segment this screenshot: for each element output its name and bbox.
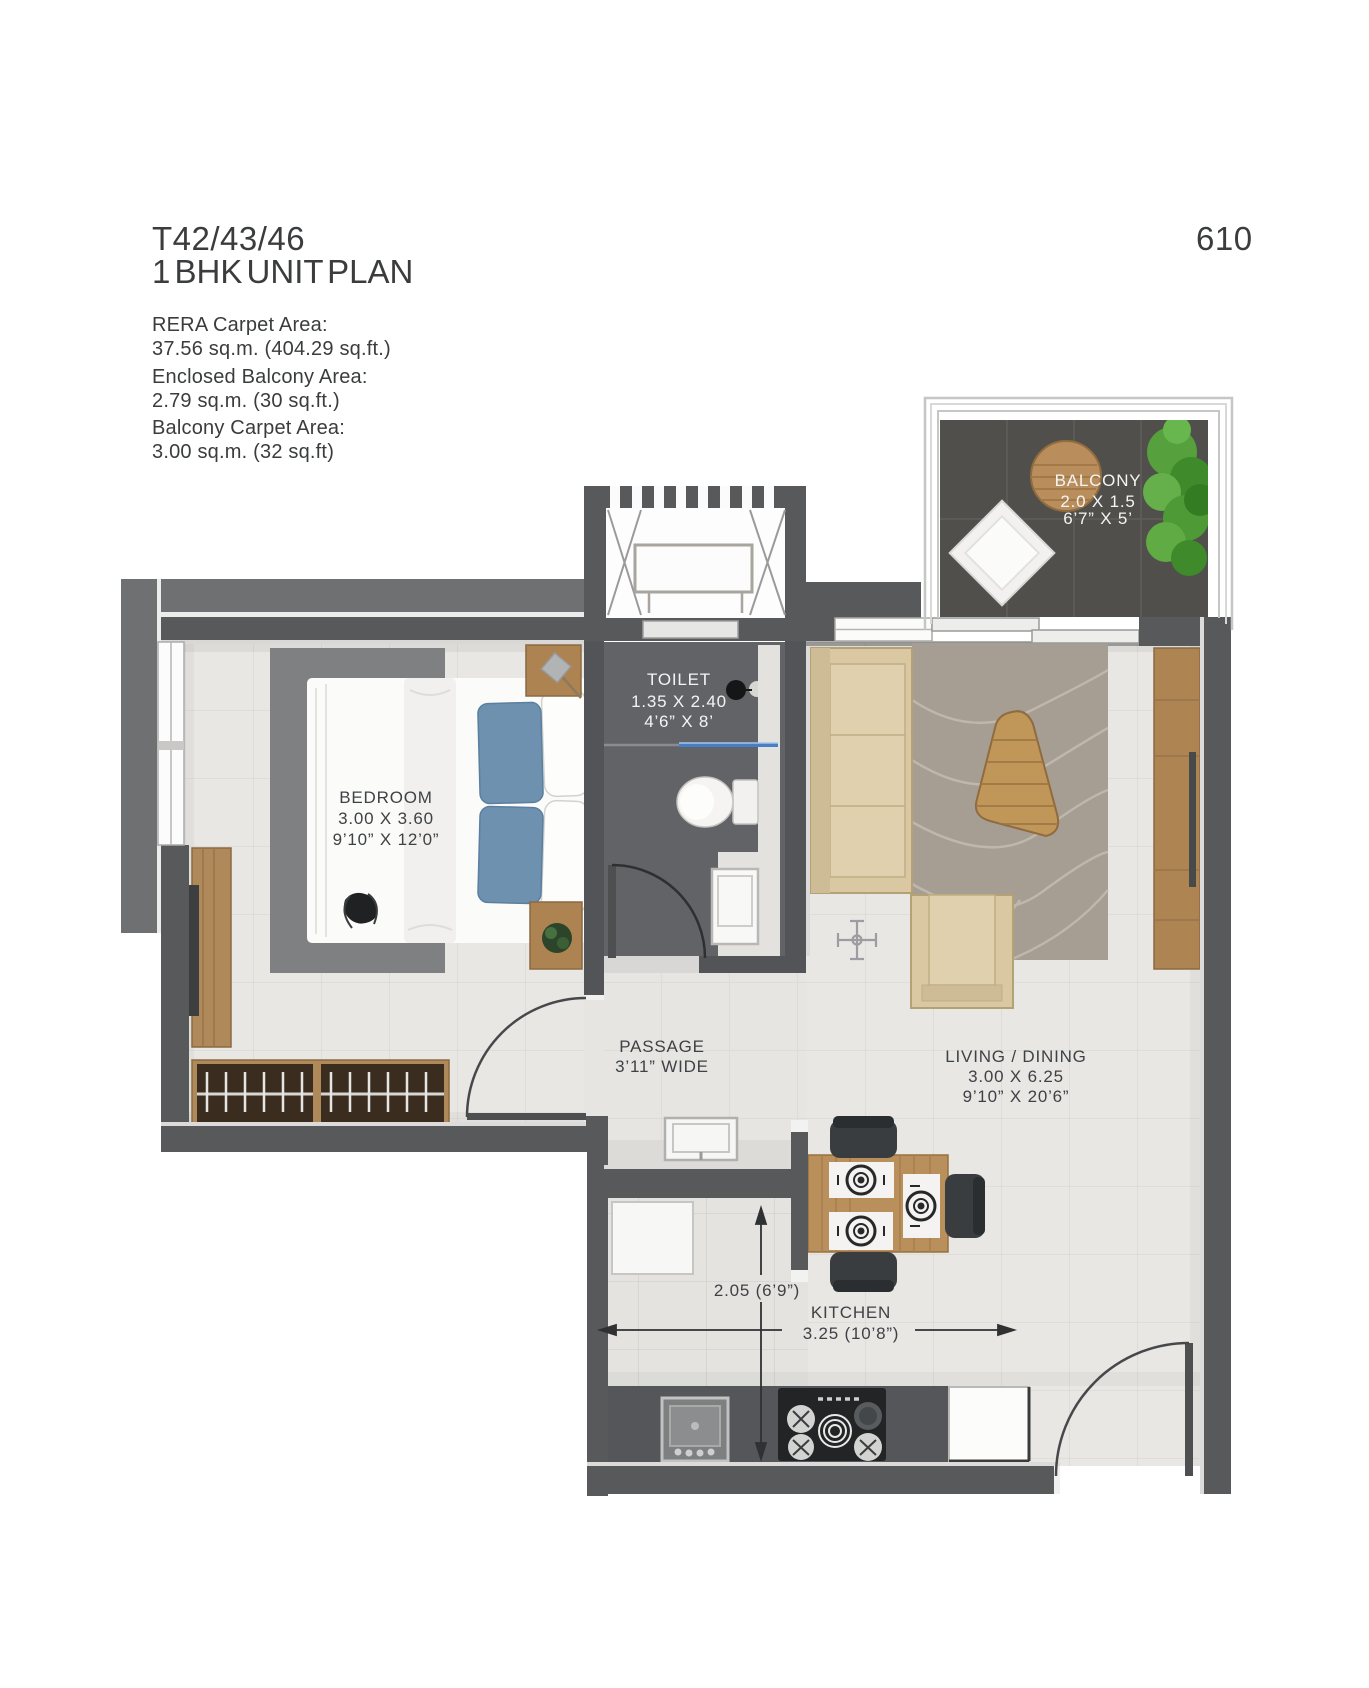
svg-text:3’11” WIDE: 3’11” WIDE <box>615 1057 709 1076</box>
svg-text:TOILET: TOILET <box>647 670 711 689</box>
svg-text:4’6” X 8’: 4’6” X 8’ <box>644 712 714 731</box>
svg-text:Balcony Carpet Area:: Balcony Carpet Area: <box>152 417 345 439</box>
svg-text:610: 610 <box>1196 220 1253 257</box>
svg-text:3.00 sq.m. (32 sq.ft): 3.00 sq.m. (32 sq.ft) <box>152 441 334 463</box>
svg-text:KITCHEN: KITCHEN <box>811 1303 891 1322</box>
svg-text:PASSAGE: PASSAGE <box>619 1037 705 1056</box>
svg-text:6’7” X 5’: 6’7” X 5’ <box>1063 509 1133 528</box>
svg-text:9’10” X 12’0”: 9’10” X 12’0” <box>333 830 440 849</box>
svg-text:BALCONY: BALCONY <box>1055 471 1142 490</box>
svg-text:2.05 (6’9”): 2.05 (6’9”) <box>714 1281 800 1300</box>
svg-text:1 BHK UNIT PLAN: 1 BHK UNIT PLAN <box>152 253 413 290</box>
svg-text:3.25 (10’8”): 3.25 (10’8”) <box>803 1324 900 1343</box>
svg-text:9’10” X 20’6”: 9’10” X 20’6” <box>963 1087 1070 1106</box>
svg-text:LIVING / DINING: LIVING / DINING <box>945 1047 1086 1066</box>
svg-text:2.79 sq.m. (30 sq.ft.): 2.79 sq.m. (30 sq.ft.) <box>152 390 340 412</box>
svg-text:37.56 sq.m. (404.29 sq.ft.): 37.56 sq.m. (404.29 sq.ft.) <box>152 338 391 360</box>
svg-text:Enclosed Balcony Area:: Enclosed Balcony Area: <box>152 366 368 388</box>
svg-text:1.35 X 2.40: 1.35 X 2.40 <box>631 692 727 711</box>
svg-text:3.00 X 3.60: 3.00 X 3.60 <box>338 809 434 828</box>
svg-text:BEDROOM: BEDROOM <box>339 788 432 807</box>
svg-text:3.00 X 6.25: 3.00 X 6.25 <box>968 1067 1064 1086</box>
svg-text:RERA Carpet Area:: RERA Carpet Area: <box>152 314 328 336</box>
svg-text:T42/43/46: T42/43/46 <box>152 220 305 257</box>
